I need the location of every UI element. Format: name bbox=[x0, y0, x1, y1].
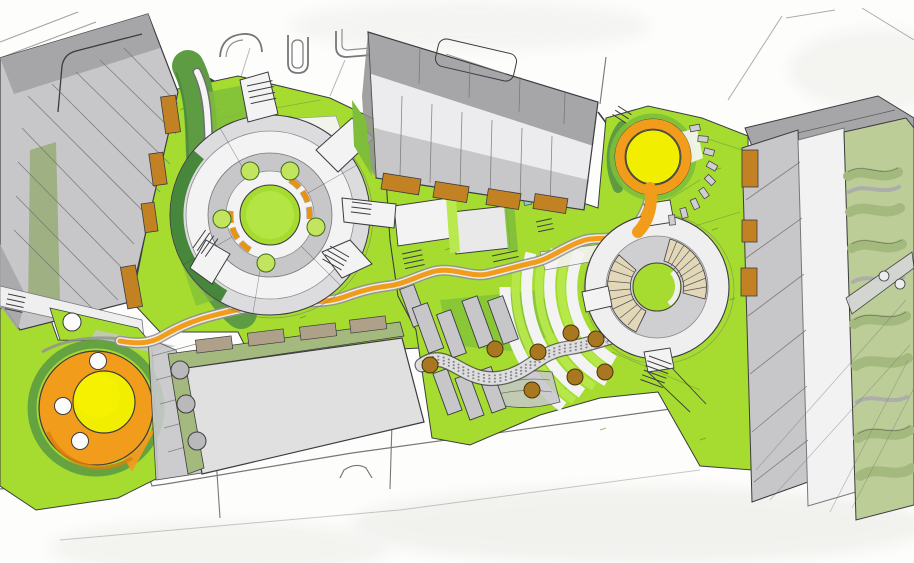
tree bbox=[213, 210, 231, 228]
tree bbox=[422, 357, 438, 373]
southwest-focal bbox=[32, 338, 160, 472]
plaza-lawn-centre bbox=[633, 263, 681, 311]
tree bbox=[241, 162, 259, 180]
yellow-circle-northeast bbox=[626, 130, 680, 184]
tree bbox=[487, 341, 503, 357]
masterplan-sketch bbox=[0, 0, 914, 563]
planter bbox=[741, 268, 757, 296]
stone bbox=[669, 215, 676, 225]
masterplan-canvas bbox=[0, 0, 914, 563]
planter bbox=[742, 220, 757, 242]
orange-planters-east-face bbox=[741, 150, 758, 296]
tree bbox=[597, 364, 613, 380]
tree bbox=[524, 382, 540, 398]
sage-strip bbox=[28, 142, 60, 312]
tree bbox=[563, 325, 579, 341]
tree bbox=[257, 254, 275, 272]
tree-circle-white bbox=[63, 313, 81, 331]
tree bbox=[567, 369, 583, 385]
stone bbox=[690, 124, 701, 132]
tree bbox=[281, 162, 299, 180]
stone bbox=[698, 136, 708, 143]
east-building bbox=[741, 96, 914, 520]
tree bbox=[307, 218, 325, 236]
planter bbox=[742, 150, 758, 187]
tree bbox=[530, 344, 546, 360]
